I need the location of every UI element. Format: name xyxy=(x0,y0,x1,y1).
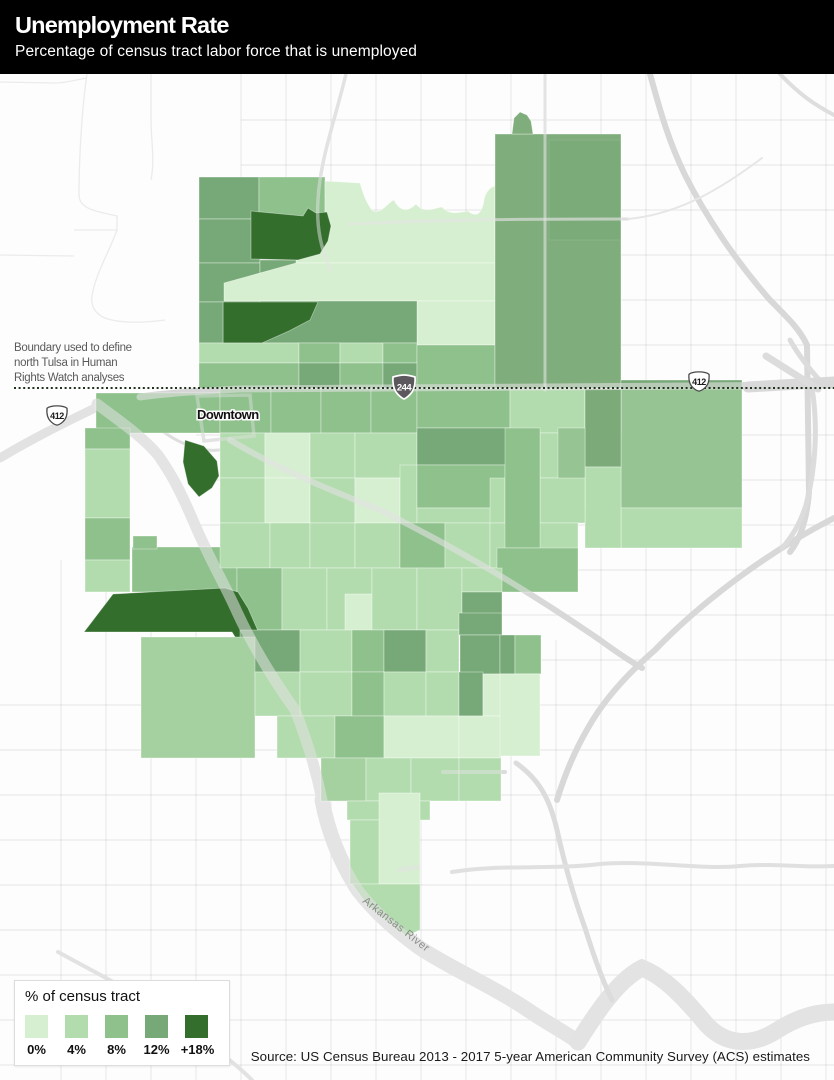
svg-text:244: 244 xyxy=(397,383,413,394)
svg-text:north Tulsa in Human: north Tulsa in Human xyxy=(14,357,117,369)
svg-text:Boundary used to define: Boundary used to define xyxy=(14,342,132,354)
svg-text:Rights Watch analyses: Rights Watch analyses xyxy=(14,372,125,384)
svg-text:412: 412 xyxy=(692,377,706,387)
svg-text:412: 412 xyxy=(50,411,64,421)
svg-text:Downtown: Downtown xyxy=(197,407,259,422)
